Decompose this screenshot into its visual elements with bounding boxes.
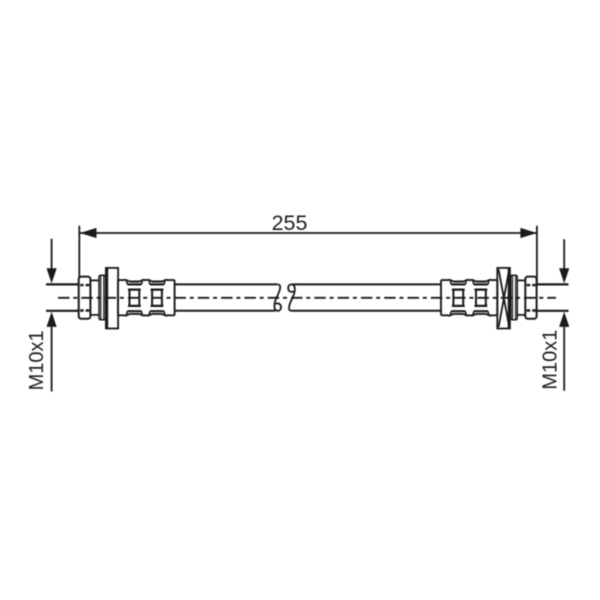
svg-text:M10x1: M10x1 bbox=[540, 330, 562, 390]
svg-text:M10x1: M10x1 bbox=[26, 330, 48, 390]
svg-text:255: 255 bbox=[272, 211, 308, 235]
